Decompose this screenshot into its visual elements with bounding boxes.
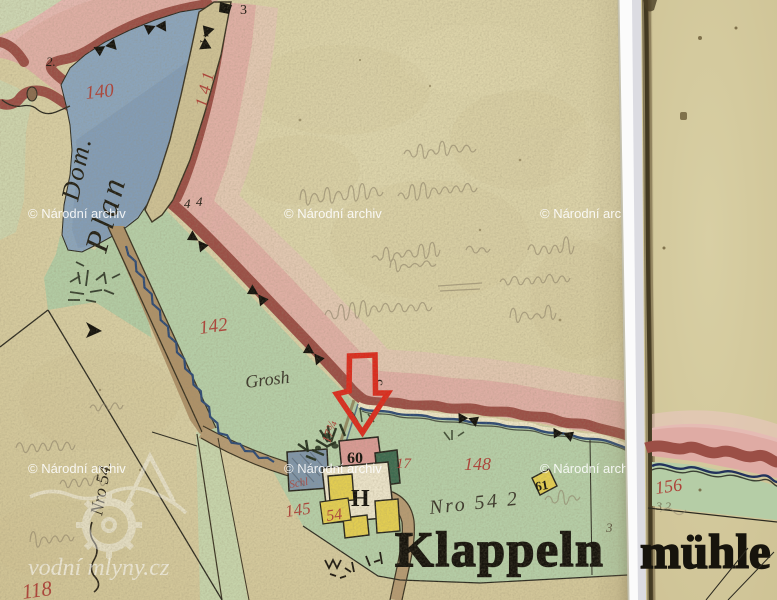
svg-text:© Národní archiv: © Národní archiv bbox=[540, 461, 638, 476]
svg-text:mühle: mühle bbox=[640, 524, 771, 579]
svg-text:© Národní archiv: © Národní archiv bbox=[284, 206, 382, 221]
svg-text:© Národní archiv: © Národní archiv bbox=[28, 461, 126, 476]
svg-text:© Národní archiv: © Národní archiv bbox=[28, 206, 126, 221]
svg-text:3 2: 3 2 bbox=[655, 499, 671, 513]
svg-text:156: 156 bbox=[654, 474, 684, 498]
svg-text:© Národní archiv: © Národní archiv bbox=[284, 461, 382, 476]
